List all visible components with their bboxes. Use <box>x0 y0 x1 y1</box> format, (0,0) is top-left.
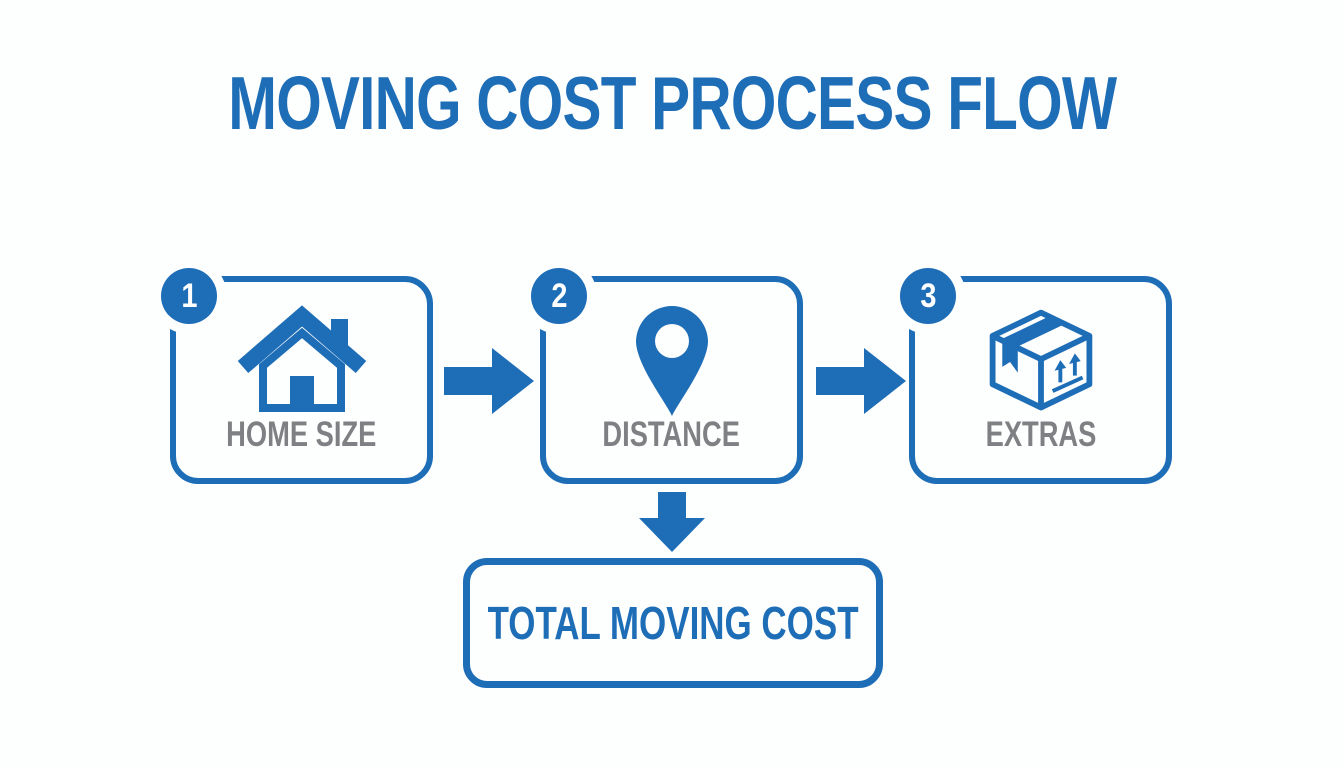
step-label: EXTRAS <box>915 417 1166 452</box>
right-arrow-icon <box>816 348 906 414</box>
step-label: HOME SIZE <box>176 417 427 452</box>
down-arrow-icon <box>639 492 705 552</box>
moving-box-icon <box>915 304 1166 422</box>
page-title: MOVING COST PROCESS FLOW <box>0 66 1344 141</box>
step-box-extras: 3 <box>909 276 1172 484</box>
house-icon <box>176 304 427 418</box>
right-arrow-icon <box>444 348 534 414</box>
total-moving-cost-label: TOTAL MOVING COST <box>488 596 859 650</box>
location-pin-icon <box>546 304 797 420</box>
page-title-text: MOVING COST PROCESS FLOW <box>228 66 1116 141</box>
total-moving-cost-box: TOTAL MOVING COST <box>463 558 883 688</box>
moving-cost-flow-diagram: MOVING COST PROCESS FLOW 1 HOME SIZE <box>0 0 1344 768</box>
step-box-distance: 2 DISTANCE <box>540 276 803 484</box>
step-label: DISTANCE <box>546 417 797 452</box>
step-box-home-size: 1 HOME SIZE <box>170 276 433 484</box>
